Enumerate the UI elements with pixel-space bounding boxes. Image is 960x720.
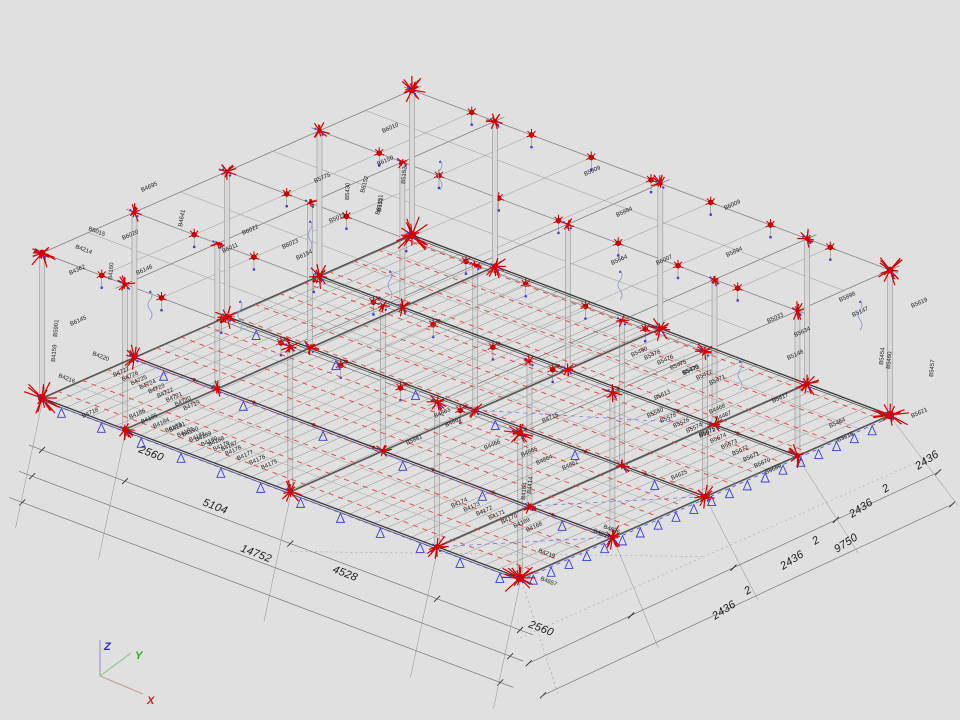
dimension-tick	[29, 473, 35, 479]
beam-label: B4214	[74, 244, 93, 256]
burst-blue-dot	[799, 459, 801, 461]
beam-label: B5454	[879, 347, 887, 365]
burst-blue-dot	[37, 250, 39, 252]
burst-blue-dot	[136, 360, 138, 362]
support-triangle	[743, 481, 751, 490]
burst-blue-dot	[292, 349, 294, 351]
model-view[interactable]: 2560510414752452825602436224362975024362…	[0, 0, 960, 720]
burst-blue-dot	[709, 421, 711, 423]
beam-label: B6009	[723, 199, 742, 212]
node-support-dot	[193, 246, 195, 248]
burst-blue-dot	[136, 215, 138, 217]
burst-blue-dot	[44, 401, 46, 403]
tie-rod-dashed	[156, 348, 634, 528]
node-dot	[708, 200, 713, 205]
node-support-dot	[312, 291, 314, 293]
burst-blue-dot	[709, 276, 711, 278]
column	[658, 184, 663, 329]
beam-label: B4715	[541, 412, 560, 425]
burst-core	[566, 223, 569, 226]
burst-core	[493, 119, 497, 123]
node-dot	[251, 255, 256, 260]
beam-label: B5775	[313, 172, 332, 185]
burst-core	[434, 544, 440, 550]
column	[805, 239, 810, 384]
support-triangle	[456, 558, 464, 567]
burst-blue-dot	[292, 494, 294, 496]
node-support-dot	[769, 236, 771, 238]
dimension-text: 9750	[832, 531, 861, 555]
extension-line	[16, 403, 42, 528]
burst-blue-dot	[120, 426, 122, 428]
burst-blue-dot	[37, 395, 39, 397]
burst-blue-dot	[470, 262, 472, 264]
beam-label: B5009	[583, 165, 602, 178]
burst-blue-dot	[655, 180, 657, 182]
burst-core	[381, 304, 384, 307]
burst-core	[308, 346, 312, 350]
burst-core	[805, 237, 809, 241]
node-support-dot	[253, 268, 255, 270]
burst-core	[795, 453, 801, 459]
y-axis-line	[100, 653, 131, 676]
node-dot	[583, 304, 588, 309]
burst-blue-dot	[802, 381, 804, 383]
y-axis-label: Y	[135, 650, 144, 662]
node-dot	[768, 223, 773, 228]
burst-blue-dot	[385, 454, 387, 456]
x-axis-label: X	[146, 695, 155, 707]
support-triangle	[651, 481, 659, 490]
burst-blue-dot	[700, 348, 702, 350]
node-support-dot	[551, 381, 553, 383]
burst-core	[435, 400, 439, 404]
burst-blue-dot	[378, 448, 380, 450]
burst-blue-dot	[477, 268, 479, 270]
burst-blue-dot	[432, 399, 434, 401]
extension-line	[707, 501, 758, 601]
node-support-dot	[829, 259, 831, 261]
beam-label: B5894	[725, 246, 744, 259]
beam-label: B6146	[135, 264, 154, 277]
burst-blue-dot	[439, 550, 441, 552]
squiggle	[738, 360, 742, 390]
dimension-tick	[39, 447, 45, 453]
burst-core	[528, 360, 531, 363]
beam-label: B5151	[377, 194, 385, 212]
node-dot	[469, 110, 474, 115]
burst-blue-dot	[477, 413, 479, 415]
column	[40, 253, 45, 398]
burst-blue-dot	[617, 462, 619, 464]
burst-blue-dot	[439, 405, 441, 407]
burst-blue-dot	[716, 282, 718, 284]
squiggle-marks	[148, 160, 862, 390]
burst-blue-dot	[404, 310, 406, 312]
beam-label: B6015	[87, 226, 106, 238]
burst-blue-dot	[531, 509, 533, 511]
node-dot	[458, 408, 463, 413]
support-triangle	[399, 461, 407, 470]
support-triangle	[601, 544, 609, 553]
burst-blue-dot	[305, 200, 307, 202]
brace-dashed	[529, 497, 704, 507]
burst-blue-dot	[655, 325, 657, 327]
burst-core	[517, 430, 524, 437]
beam-label: B4657	[539, 576, 558, 588]
beam-label: B4362	[68, 264, 87, 277]
node-support-dot	[650, 191, 652, 193]
beam-label: B5621	[910, 407, 929, 420]
beam-label: B6152	[360, 175, 370, 194]
ground-line	[290, 552, 705, 557]
node-dot	[529, 133, 534, 138]
support-triangle	[97, 423, 105, 432]
burst-blue-dot	[809, 387, 811, 389]
beam-label: B5033	[766, 312, 785, 325]
burst-blue-dot	[229, 174, 231, 176]
burst-core	[620, 319, 623, 322]
node-support-dot	[101, 287, 103, 289]
dimension-text: 2436	[846, 496, 875, 521]
burst-blue-dot	[321, 134, 323, 136]
deck-girder	[319, 278, 797, 458]
burst-blue-dot	[397, 304, 399, 306]
support-triangle	[257, 483, 265, 492]
burst-blue-dot	[314, 128, 316, 130]
burst-blue-dot	[700, 493, 702, 495]
dimension-text: 4528	[331, 564, 360, 585]
node-support-dot	[220, 332, 222, 334]
node-support-dot	[557, 232, 559, 234]
beam-label: B5901	[53, 319, 61, 337]
node-dot	[436, 173, 441, 178]
brace-dashed	[437, 537, 612, 546]
roof-purlin	[366, 110, 844, 290]
beam-label: B5457	[929, 359, 937, 377]
node-dot	[735, 286, 740, 291]
dimension-tick	[19, 499, 25, 505]
support-triangle	[618, 536, 626, 545]
beam-label: B5515	[836, 431, 855, 444]
burst-blue-dot	[522, 581, 524, 583]
burst-core	[887, 267, 894, 274]
burst-blue-dot	[321, 279, 323, 281]
burst-blue-dot	[432, 544, 434, 546]
support-triangle	[654, 520, 662, 529]
node-support-dot	[530, 146, 532, 148]
dimension-tick	[497, 679, 503, 685]
beam-label: B5471	[708, 374, 727, 387]
beam-label: B6023	[281, 238, 300, 251]
beam-label: B4625	[670, 469, 689, 482]
tie-rod-dashed	[230, 315, 708, 495]
burst-blue-dot	[490, 118, 492, 120]
node-dot	[99, 273, 104, 278]
burst-blue-dot	[624, 468, 626, 470]
node-support-dot	[617, 254, 619, 256]
beam-label: B4220	[91, 351, 110, 363]
beam-label: B6022	[241, 224, 260, 237]
burst-blue-dot	[707, 354, 709, 356]
burst-blue-dot	[716, 427, 718, 429]
burst-blue-dot	[563, 221, 565, 223]
burst-core	[401, 160, 404, 163]
burst-core	[224, 314, 230, 320]
burst-core	[409, 87, 416, 94]
x-axis-line	[100, 676, 143, 694]
extension-line	[522, 582, 558, 695]
burst-core	[713, 278, 716, 281]
burst-blue-dot	[892, 273, 894, 275]
squiggle-dot	[389, 271, 391, 273]
dimension-text: 2	[809, 534, 822, 548]
support-triangle	[376, 528, 384, 537]
burst-blue-dot	[44, 256, 46, 258]
support-triangle	[636, 528, 644, 537]
support-triangle	[565, 559, 573, 568]
squiggle-dot	[619, 271, 621, 273]
beam-label: B4219	[537, 548, 556, 560]
node-support-dot	[372, 313, 374, 315]
node-dot	[828, 245, 833, 250]
node-support-dot	[345, 228, 347, 230]
extension-line	[614, 541, 658, 648]
burst-core	[566, 367, 570, 371]
column	[224, 172, 229, 317]
support-triangle	[336, 513, 344, 522]
burst-blue-dot	[129, 354, 131, 356]
support-triangle	[583, 552, 591, 561]
burst-blue-dot	[385, 309, 387, 311]
beam-label: B6011	[221, 242, 239, 255]
burst-core	[225, 169, 229, 173]
column	[122, 284, 127, 429]
burst-core	[528, 504, 532, 508]
dimension-text: 2560	[526, 618, 556, 639]
burst-blue-dot	[624, 323, 626, 325]
burst-blue-dot	[219, 391, 221, 393]
node-dot	[284, 192, 289, 197]
burst-blue-dot	[614, 395, 616, 397]
node-dot	[550, 367, 555, 372]
node-support-dot	[677, 277, 679, 279]
extension-line	[411, 552, 437, 677]
support-triangle	[416, 543, 424, 552]
node-dot	[675, 263, 680, 268]
burst-blue-dot	[662, 331, 664, 333]
burst-core	[216, 242, 219, 245]
node-support-dot	[465, 273, 467, 275]
support-triangle	[547, 567, 555, 576]
burst-blue-dot	[212, 385, 214, 387]
beam-label: B5417	[771, 392, 790, 405]
beam-label: B5152	[401, 166, 409, 184]
burst-blue-dot	[407, 87, 409, 89]
extension-line	[99, 434, 125, 559]
dimension-tick	[935, 469, 941, 475]
burst-core	[492, 263, 498, 269]
node-dot	[159, 296, 164, 301]
beam-label: B5464	[828, 417, 847, 430]
column	[317, 131, 322, 276]
burst-blue-dot	[470, 407, 472, 409]
beam-label: B6145	[69, 315, 88, 328]
dimension-text: 2436	[912, 448, 941, 473]
beam-label: B6010	[381, 122, 400, 135]
burst-core	[123, 282, 127, 286]
burst-blue-dot	[212, 240, 214, 242]
burst-blue-dot	[531, 364, 533, 366]
burst-core	[474, 263, 477, 266]
burst-blue-dot	[662, 186, 664, 188]
dimension-tick	[540, 692, 546, 698]
dimension-text: 5104	[201, 497, 229, 517]
node-support-dot	[286, 205, 288, 207]
burst-blue-dot	[522, 436, 524, 438]
dimension-tick	[507, 653, 513, 659]
burst-blue-dot	[490, 263, 492, 265]
node-dot	[648, 178, 653, 183]
burst-core	[308, 201, 311, 204]
support-triangle	[177, 453, 185, 462]
burst-core	[473, 408, 477, 412]
burst-blue-dot	[617, 317, 619, 319]
beam-label: B4864	[535, 454, 554, 467]
beam-label: B4160	[108, 262, 116, 280]
burst-blue-dot	[312, 206, 314, 208]
dimension-tick	[287, 541, 293, 547]
dimension-tick	[517, 627, 523, 633]
node-dot	[589, 155, 594, 160]
dimension-text: 2	[741, 584, 754, 598]
axis-triad: ZYX	[100, 640, 155, 707]
node-dot	[377, 151, 382, 156]
tie-rod-dashed	[353, 261, 831, 441]
burst-core	[620, 463, 624, 467]
burst-blue-dot	[570, 372, 572, 374]
burst-core	[132, 210, 136, 214]
burst-core	[132, 354, 138, 360]
node-dot	[490, 345, 495, 350]
burst-blue-dot	[285, 343, 287, 345]
dimension-line	[19, 471, 523, 661]
support-triangle	[815, 449, 823, 458]
node-support-dot	[644, 340, 646, 342]
burst-blue-dot	[222, 313, 224, 315]
burst-core	[381, 449, 385, 453]
burst-blue-dot	[129, 209, 131, 211]
burst-blue-dot	[524, 358, 526, 360]
squiggle-dot	[439, 161, 441, 163]
burst-blue-dot	[378, 303, 380, 305]
dimension-text: 2560	[136, 443, 166, 464]
node-support-dot	[498, 209, 500, 211]
burst-blue-dot	[809, 242, 811, 244]
burst-blue-dot	[127, 432, 129, 434]
column	[492, 121, 497, 266]
dimension-tick	[434, 596, 440, 602]
cad-viewport[interactable]: 2560510414752452825602436224362975024362…	[0, 0, 960, 720]
burst-blue-dot	[885, 412, 887, 414]
burst-blue-dot	[397, 159, 399, 161]
beam-label: B5619	[910, 297, 929, 310]
node-dot	[192, 232, 197, 237]
column	[887, 270, 892, 415]
beam-label: B4216	[57, 373, 76, 385]
dimension-tick	[731, 565, 737, 571]
burst-blue-dot	[497, 269, 499, 271]
burst-blue-dot	[515, 430, 517, 432]
burst-blue-dot	[885, 267, 887, 269]
node-support-dot	[471, 123, 473, 125]
burst-blue-dot	[802, 236, 804, 238]
burst-core	[288, 489, 294, 495]
burst-core	[804, 381, 810, 387]
beam-label: B4159	[51, 344, 59, 362]
support-triangle	[319, 431, 327, 440]
support-triangle	[558, 521, 566, 530]
dimension-tick	[949, 501, 955, 507]
beam-label: B5864	[610, 254, 629, 267]
burst-blue-dot	[497, 124, 499, 126]
burst-blue-dot	[414, 93, 416, 95]
burst-blue-dot	[120, 281, 122, 283]
support-triangle	[725, 489, 733, 498]
support-triangle	[690, 504, 698, 513]
dimension-tick	[122, 478, 128, 484]
tie-rod-dashed	[82, 380, 560, 560]
burst-core	[317, 273, 323, 279]
burst-core	[215, 387, 219, 391]
burst-blue-dot	[892, 418, 894, 420]
beam-label: B5430	[345, 182, 352, 200]
dimension-text: 2	[879, 482, 892, 496]
dimension-text: 14752	[239, 543, 273, 566]
support-triangle	[868, 426, 876, 435]
squiggle-dot	[149, 291, 151, 293]
burst-core	[288, 344, 292, 348]
burst-blue-dot	[563, 366, 565, 368]
burst-blue-dot	[515, 575, 517, 577]
burst-blue-dot	[792, 308, 794, 310]
burst-blue-dot	[607, 389, 609, 391]
squiggle-dot	[239, 301, 241, 303]
burst-core	[702, 494, 708, 500]
burst-core	[39, 250, 46, 257]
burst-blue-dot	[570, 227, 572, 229]
burst-core	[658, 326, 664, 332]
column	[410, 90, 415, 235]
burst-blue-dot	[222, 168, 224, 170]
column	[215, 244, 220, 389]
burst-blue-dot	[312, 351, 314, 353]
dimension-text: 2436	[777, 548, 806, 573]
beam-label: B5013	[328, 212, 347, 225]
burst-blue-dot	[127, 287, 129, 289]
beam-label: B4718	[81, 407, 100, 420]
burst-core	[795, 309, 799, 313]
burst-blue-dot	[799, 314, 801, 316]
burst-blue-dot	[414, 238, 416, 240]
burst-core	[122, 426, 128, 432]
burst-blue-dot	[314, 273, 316, 275]
burst-blue-dot	[407, 232, 409, 234]
extension-line	[494, 583, 520, 708]
dimension-text: 2436	[709, 598, 738, 623]
beam-label: B5147	[851, 306, 870, 319]
beam-label: B4414	[527, 476, 535, 494]
